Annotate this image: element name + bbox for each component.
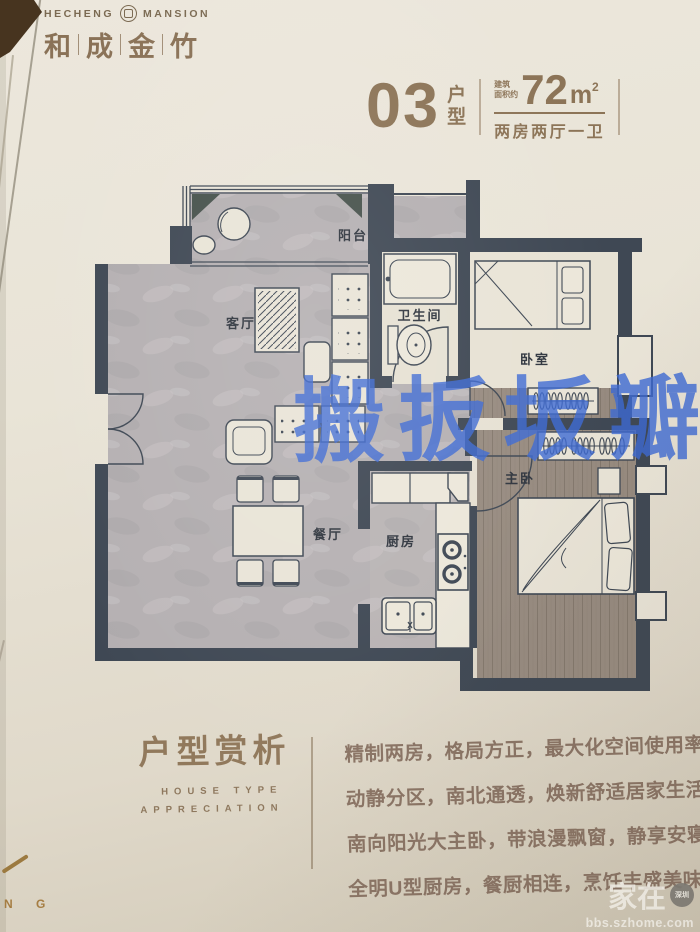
unit-area: 建筑 面积约 72 m 2 两房两厅一卫 [494, 72, 605, 142]
area-unit: m [570, 83, 592, 108]
divider [479, 79, 481, 135]
site-watermark: 家在 深圳 bbs.szhome.com [586, 874, 694, 930]
site-badge: 深圳 [670, 883, 694, 907]
brand-cn-char: 竹 [170, 25, 197, 64]
underlying-page-letters: N G [4, 897, 55, 911]
area-value: 72 [521, 72, 568, 108]
unit-type-label: 户 型 [447, 85, 466, 129]
appreciation-header: 户型赏析 HOUSE TYPE APPRECIATION [138, 723, 292, 816]
master-bed [518, 498, 634, 594]
site-name: 家在 [608, 874, 666, 916]
brand-name-cn: 和成金竹 [44, 25, 210, 64]
armchair [226, 420, 272, 464]
unit-number: 03 [366, 75, 440, 138]
divider [311, 737, 313, 869]
area-prefix: 建筑 面积约 [494, 80, 518, 101]
divider [162, 34, 163, 55]
divider [618, 79, 620, 135]
brand-cn-char: 成 [86, 25, 113, 64]
brand-name-en: HECHENG MANSION [44, 5, 210, 22]
label-living: 客厅 [226, 316, 256, 331]
appreciation-title: 户型赏析 [138, 723, 291, 774]
area-superscript: 2 [592, 80, 599, 94]
unit-info: 03 户 型 建筑 面积约 72 m 2 两房两厅一卫 [366, 72, 633, 142]
tv-cabinet [255, 288, 299, 352]
appreciation-subtitle: HOUSE TYPE APPRECIATION [139, 784, 291, 816]
site-url: bbs.szhome.com [586, 916, 694, 930]
label-dining: 餐厅 [312, 527, 343, 542]
brand-en-right: MANSION [143, 8, 210, 20]
brand-header: HECHENG MANSION 和成金竹 [44, 5, 210, 64]
bathtub [384, 254, 456, 304]
label-kitchen: 厨房 [386, 534, 416, 549]
divider [78, 34, 79, 55]
brochure-page: N G HECHENG MANSION 和成金竹 03 户 型 建筑 面积约 7… [0, 0, 700, 932]
brand-cn-char: 金 [128, 25, 155, 64]
brand-cn-char: 和 [44, 25, 71, 64]
label-balcony: 阳台 [338, 228, 368, 243]
kitchen-stove [438, 534, 468, 590]
brand-logo-icon [120, 5, 137, 22]
kitchen-sink [382, 598, 436, 634]
divider [120, 34, 121, 55]
brand-en-left: HECHENG [44, 8, 114, 20]
bedroom-bed [475, 261, 590, 329]
forum-watermark-text: 搬扳坂瓣 [292, 344, 700, 481]
unit-layout: 两房两厅一卫 [494, 112, 605, 142]
label-bathroom: 卫生间 [397, 308, 442, 323]
